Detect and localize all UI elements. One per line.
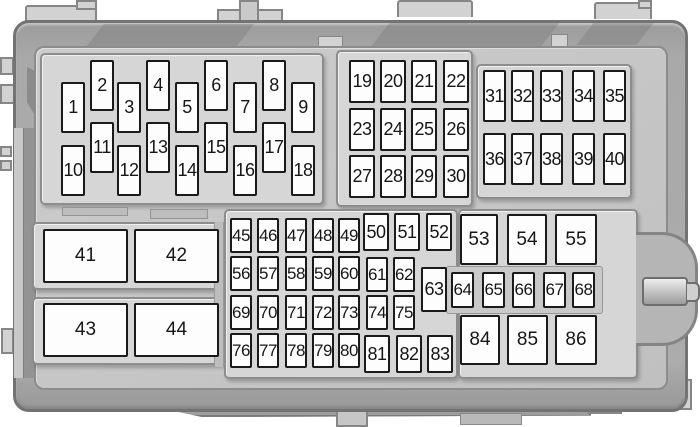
fuse-20: 20	[380, 60, 406, 103]
mounting-bolt-tip	[687, 282, 700, 302]
fuse-60: 60	[338, 256, 360, 291]
fuse-58: 58	[285, 256, 307, 291]
fuse-65: 65	[482, 272, 505, 308]
fuse-14: 14	[175, 145, 199, 196]
fuse-1: 1	[61, 82, 85, 133]
fuse-box-diagram: 1234567891011121314151617181920212223242…	[0, 0, 700, 427]
fuse-61: 61	[366, 257, 388, 292]
fuse-19: 19	[349, 60, 375, 103]
fuse-73: 73	[338, 295, 360, 330]
fuse-4: 4	[146, 60, 170, 111]
fuse-23: 23	[349, 108, 375, 151]
fuse-68: 68	[572, 272, 595, 308]
fuse-82: 82	[396, 335, 422, 373]
fuse-51: 51	[394, 213, 420, 251]
fuse-22: 22	[443, 60, 469, 103]
fuse-59: 59	[312, 256, 334, 291]
fuse-9: 9	[291, 82, 315, 133]
fuse-72: 72	[312, 295, 334, 330]
relay-54: 54	[507, 214, 547, 265]
fuse-52: 52	[426, 213, 452, 251]
fuse-37: 37	[511, 133, 534, 185]
fuse-57: 57	[257, 256, 279, 291]
fuse-24: 24	[380, 108, 406, 151]
fuse-38: 38	[540, 133, 563, 185]
fuse-69: 69	[230, 295, 252, 330]
fuse-3: 3	[117, 82, 141, 133]
fuse-31: 31	[483, 70, 506, 122]
fuse-26: 26	[443, 108, 469, 151]
relay-41: 41	[43, 229, 128, 283]
relay-86: 86	[555, 315, 597, 365]
relay-42: 42	[134, 229, 219, 283]
fuse-81: 81	[364, 335, 390, 373]
fuse-75: 75	[393, 295, 415, 330]
relay-55: 55	[555, 214, 597, 265]
relay-84: 84	[460, 315, 500, 365]
fuse-8: 8	[262, 60, 286, 111]
fuse-63: 63	[421, 267, 447, 312]
relay-43: 43	[43, 303, 128, 357]
fuse-56: 56	[230, 256, 252, 291]
fuse-16: 16	[233, 145, 257, 196]
fuse-25: 25	[411, 108, 437, 151]
fuse-18: 18	[291, 145, 315, 196]
fuse-32: 32	[511, 70, 534, 122]
fuse-71: 71	[285, 295, 307, 330]
fuse-48: 48	[312, 218, 334, 253]
fuse-13: 13	[146, 122, 170, 173]
mounting-bolt	[642, 277, 688, 306]
fuse-66: 66	[512, 272, 535, 308]
fuse-47: 47	[285, 218, 307, 253]
fuse-36: 36	[483, 133, 506, 185]
fuse-46: 46	[257, 218, 279, 253]
fuse-45: 45	[230, 218, 252, 253]
fuse-11: 11	[90, 122, 114, 173]
fuse-10: 10	[61, 145, 85, 196]
relay-44: 44	[134, 303, 219, 357]
fuse-76: 76	[230, 333, 252, 368]
fuse-30: 30	[443, 155, 469, 198]
fuse-77: 77	[257, 333, 279, 368]
fuse-79: 79	[312, 333, 334, 368]
fuse-7: 7	[233, 82, 257, 133]
fuse-27: 27	[349, 155, 375, 198]
fuse-17: 17	[262, 122, 286, 173]
fuse-21: 21	[411, 60, 437, 103]
fuse-83: 83	[427, 335, 453, 373]
fuse-29: 29	[411, 155, 437, 198]
fuse-5: 5	[175, 82, 199, 133]
fuse-74: 74	[366, 295, 388, 330]
fuse-12: 12	[117, 145, 141, 196]
fuse-15: 15	[204, 122, 228, 173]
relay-85: 85	[507, 315, 548, 365]
fuse-28: 28	[380, 155, 406, 198]
fuse-39: 39	[572, 133, 595, 185]
fuse-33: 33	[540, 70, 563, 122]
fuse-35: 35	[603, 70, 626, 122]
fuses-layer: 1234567891011121314151617181920212223242…	[0, 0, 700, 427]
fuse-80: 80	[338, 333, 360, 368]
fuse-50: 50	[363, 213, 389, 251]
fuse-70: 70	[257, 295, 279, 330]
fuse-64: 64	[451, 272, 474, 308]
fuse-62: 62	[393, 257, 415, 292]
relay-53: 53	[460, 214, 498, 265]
fuse-34: 34	[572, 70, 595, 122]
fuse-78: 78	[285, 333, 307, 368]
fuse-2: 2	[90, 60, 114, 111]
fuse-67: 67	[543, 272, 566, 308]
fuse-6: 6	[204, 60, 228, 111]
fuse-49: 49	[338, 218, 360, 253]
fuse-40: 40	[603, 133, 626, 185]
